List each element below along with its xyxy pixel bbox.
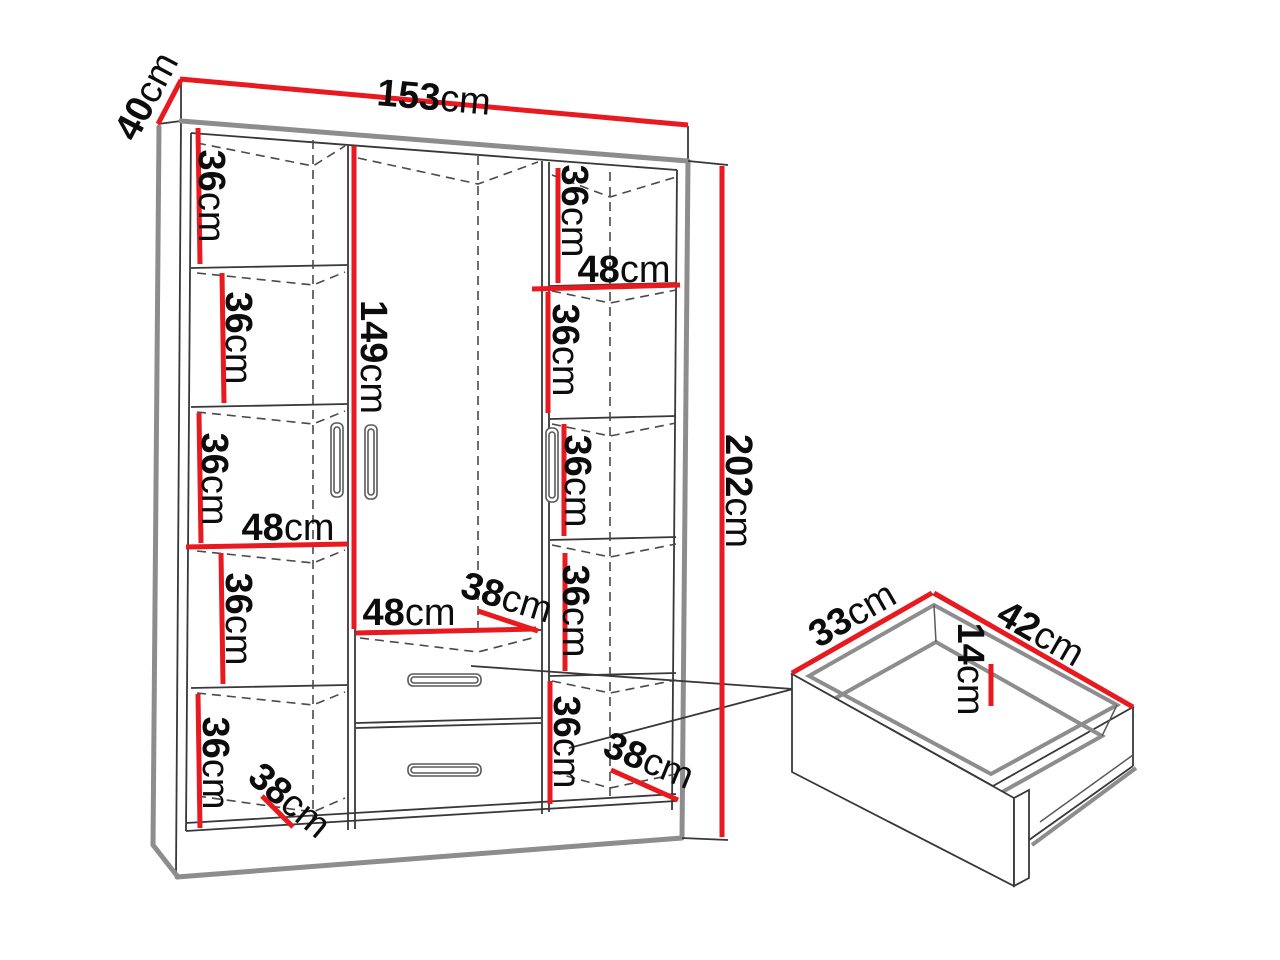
door-handle-inner: [334, 427, 340, 493]
left-side-edge: [153, 127, 159, 845]
hidden-edge: [358, 158, 538, 184]
dim-label-right-36-5: 36cm: [545, 696, 587, 789]
hidden-edge: [552, 680, 676, 693]
dim-label-left-36-4: 36cm: [217, 573, 259, 666]
dimension-lines: [158, 79, 1133, 837]
dimension-labels: 40cm 153cm 36cm 36cm 36cm 36cm 36cm 48cm…: [107, 46, 1092, 847]
plinth-bottom-line: [186, 801, 676, 831]
hidden-edge: [197, 272, 345, 285]
dim-label-drawer-33: 33cm: [802, 573, 903, 656]
dim-label-right-36-4: 36cm: [554, 565, 596, 658]
front-left-edge: [176, 121, 181, 874]
dim-label-height-202: 202cm: [717, 434, 759, 548]
extension-line-top: [688, 161, 728, 165]
drawer-side-shadow: [1032, 768, 1136, 845]
drawer-front-panel-edge: [1014, 790, 1029, 886]
drawer-handle-inner: [411, 767, 478, 773]
dim-label-left-36-3: 36cm: [193, 433, 235, 526]
dim-label-height-149: 149cm: [352, 300, 394, 414]
dim-label-right-36-2: 36cm: [544, 304, 586, 397]
dim-label-center-48: 48cm: [363, 592, 456, 634]
inner-right-stile: [672, 170, 677, 810]
dim-label-drawer-14: 14cm: [949, 623, 991, 716]
shelf-line: [550, 416, 676, 419]
drawer-divider-b: [356, 723, 541, 728]
hidden-edge: [360, 637, 536, 652]
door-handle-inner: [368, 429, 374, 495]
hidden-edge: [197, 692, 345, 705]
dim-label-left-36-2: 36cm: [217, 292, 259, 385]
front-bottom-edge: [177, 838, 682, 877]
hidden-edge: [197, 411, 345, 424]
dim-label-bottomleft-38: 38cm: [240, 755, 338, 847]
dim-label-right-36-1: 36cm: [553, 165, 595, 258]
dim-label-right-48: 48cm: [578, 249, 671, 291]
left-bottom-bevel: [153, 845, 178, 877]
dim-label-width-153: 153cm: [375, 72, 492, 124]
wardrobe-dimension-diagram: 40cm 153cm 36cm 36cm 36cm 36cm 36cm 48cm…: [0, 0, 1280, 960]
dimension-diagram-page: 40cm 153cm 36cm 36cm 36cm 36cm 36cm 48cm…: [0, 0, 1280, 960]
door-handle-inner: [549, 432, 555, 498]
hidden-edge: [552, 544, 676, 557]
shelf-line: [550, 537, 676, 540]
dim-label-left-36-5: 36cm: [194, 717, 236, 810]
drawer-divider-a: [356, 718, 541, 723]
dim-label-left-48: 48cm: [242, 507, 335, 549]
extension-line-bottom: [682, 838, 728, 840]
dim-label-right-36-3: 36cm: [556, 435, 598, 528]
shelf-line: [191, 265, 347, 268]
hidden-edge: [552, 290, 676, 303]
leader-line-top-drawer: [471, 666, 793, 689]
drawer-side-bottom-edge: [1029, 766, 1133, 840]
dim-label-left-36-1: 36cm: [190, 150, 232, 243]
drawer-handle-inner: [411, 677, 478, 683]
shelf-line: [191, 404, 347, 407]
drawer-back-corner-inner: [934, 605, 936, 642]
shelf-line: [191, 685, 347, 688]
front-right-edge: [682, 161, 688, 838]
